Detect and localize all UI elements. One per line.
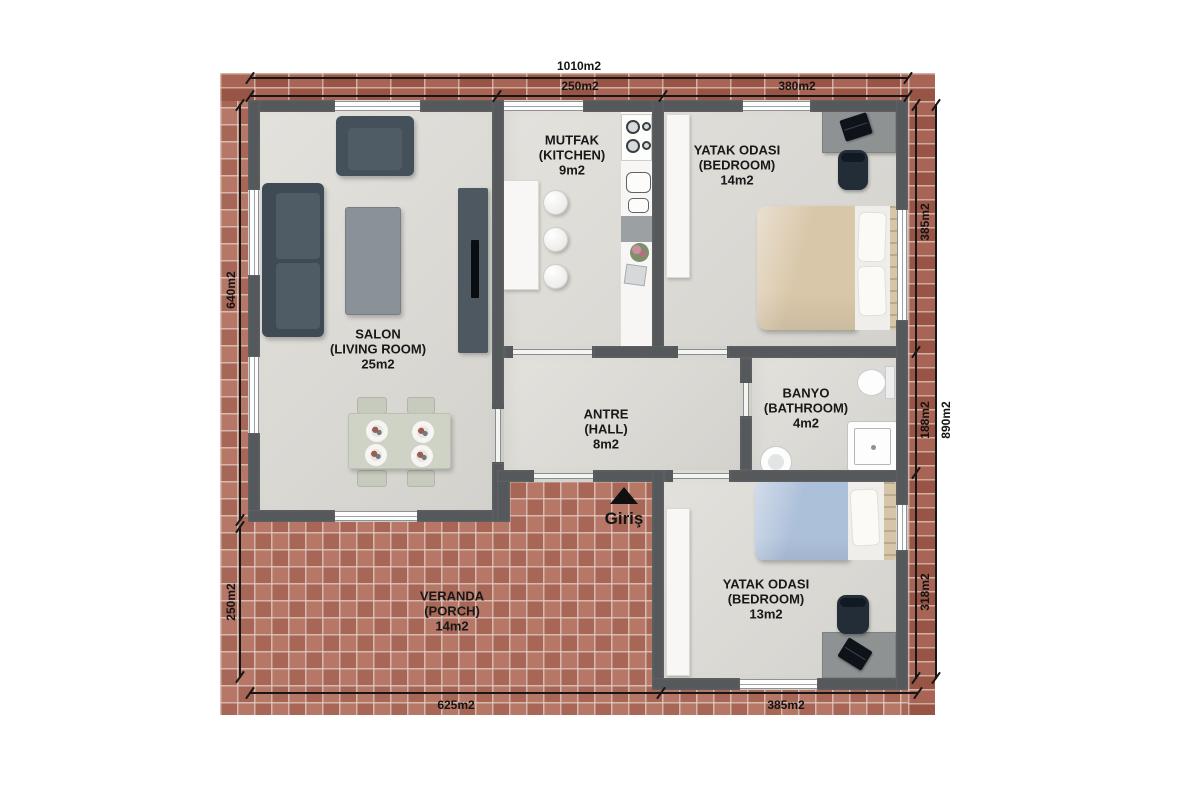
room-area: 9m2 xyxy=(539,163,605,178)
wall-right xyxy=(896,100,908,210)
room-name-tr: BANYO xyxy=(764,386,848,401)
window-bedroom2-right xyxy=(897,505,907,550)
wardrobe xyxy=(666,114,690,278)
kitchen-appliance xyxy=(621,216,653,242)
sofa-cushion xyxy=(276,263,320,329)
toilet-tank xyxy=(885,366,895,399)
plate xyxy=(410,444,434,468)
wall-left xyxy=(248,433,260,522)
dim-label-right-total: 890m2 xyxy=(939,385,953,455)
dim-label-bottom-veranda: 625m2 xyxy=(437,698,474,712)
office-chair xyxy=(838,150,868,190)
sofa-cushion xyxy=(276,193,320,259)
room-name-en: (BEDROOM) xyxy=(694,158,780,173)
window-bedroom2-bottom xyxy=(740,679,817,689)
wall-kitchen-bedroom1 xyxy=(652,100,664,358)
room-area: 14m2 xyxy=(420,619,484,634)
bed-duvet xyxy=(757,206,855,330)
wall-left xyxy=(248,275,260,357)
room-name-tr: ANTRE xyxy=(584,407,629,422)
wall-mid xyxy=(593,346,677,358)
dim-line-top-segments xyxy=(250,95,908,97)
wall-hall-bottom xyxy=(497,470,533,482)
dim-label-left-main: 640m2 xyxy=(224,255,238,325)
dim-line-right-total xyxy=(935,104,937,679)
room-area: 13m2 xyxy=(723,607,809,622)
room-area: 8m2 xyxy=(584,437,629,452)
window-salon-bottom xyxy=(335,511,417,521)
dim-line-left-veranda xyxy=(239,526,241,678)
sink-basin xyxy=(626,172,651,193)
room-name-en: (HALL) xyxy=(584,422,629,437)
plant xyxy=(630,243,649,262)
serving-tray xyxy=(624,264,648,287)
wall-salon-bottom xyxy=(248,510,335,522)
room-label-bedroom1: YATAK ODASI (BEDROOM) 14m2 xyxy=(694,143,780,188)
shower-drain xyxy=(871,445,876,450)
room-name-tr: MUTFAK xyxy=(539,133,605,148)
door-entrance xyxy=(533,473,594,479)
bar-stool xyxy=(543,227,568,252)
room-name-en: (PORCH) xyxy=(420,604,484,619)
tv xyxy=(471,240,479,298)
dim-label-left-veranda: 250m2 xyxy=(224,567,238,637)
room-area: 4m2 xyxy=(764,416,848,431)
entrance-arrow-icon xyxy=(610,487,638,504)
headboard xyxy=(890,206,897,330)
room-name-en: (BEDROOM) xyxy=(723,592,809,607)
wall-right xyxy=(896,320,908,505)
wardrobe xyxy=(666,508,690,676)
door-kitchen xyxy=(512,349,593,355)
dim-label-top-bedroom1: 380m2 xyxy=(778,79,815,93)
bar-stool xyxy=(543,264,568,289)
wall-top xyxy=(248,100,335,112)
dining-chair xyxy=(407,470,435,487)
plate xyxy=(411,420,435,444)
shower-tray xyxy=(847,421,898,472)
wall-top xyxy=(810,100,908,112)
room-label-hall: ANTRE (HALL) 8m2 xyxy=(584,407,629,452)
room-label-kitchen: MUTFAK (KITCHEN) 9m2 xyxy=(539,133,605,178)
dim-label-bottom-bedroom2: 385m2 xyxy=(767,698,804,712)
armchair-cushion xyxy=(348,128,402,170)
room-label-bedroom2: YATAK ODASI (BEDROOM) 13m2 xyxy=(723,577,809,622)
stove-burner xyxy=(626,139,640,153)
wall-mid xyxy=(728,346,908,358)
dining-chair xyxy=(357,470,387,487)
dim-label-right-bedroom2: 318m2 xyxy=(918,557,932,627)
room-name-tr: YATAK ODASI xyxy=(723,577,809,592)
room-name-tr: SALON xyxy=(330,327,426,342)
sink-basin xyxy=(628,198,649,213)
door-bedroom2 xyxy=(672,473,730,479)
headboard xyxy=(884,482,896,560)
stove-burner xyxy=(642,141,651,150)
wall-top xyxy=(420,100,497,112)
pillow xyxy=(857,266,887,317)
pillow xyxy=(850,488,881,546)
room-name-tr: YATAK ODASI xyxy=(694,143,780,158)
room-area: 25m2 xyxy=(330,357,426,372)
dim-label-top-kitchen: 250m2 xyxy=(561,79,598,93)
room-label-veranda: VERANDA (PORCH) 14m2 xyxy=(420,589,484,634)
room-name-en: (LIVING ROOM) xyxy=(330,342,426,357)
dim-label-top-total: 1010m2 xyxy=(557,59,601,73)
door-bedroom1 xyxy=(677,349,728,355)
plate xyxy=(364,443,388,467)
coffee-table xyxy=(345,207,401,315)
room-area: 14m2 xyxy=(694,173,780,188)
wall-bedroom2-bottom xyxy=(817,678,908,690)
wall-hall-bath xyxy=(740,417,752,470)
room-name-en: (BATHROOM) xyxy=(764,401,848,416)
pillow xyxy=(857,212,887,263)
wall-left xyxy=(248,100,260,190)
room-label-salon: SALON (LIVING ROOM) 25m2 xyxy=(330,327,426,372)
bar-stool xyxy=(543,190,568,215)
toilet-bowl xyxy=(857,369,886,396)
window-salon-top xyxy=(335,101,420,111)
kitchen-island xyxy=(503,180,539,290)
window-kitchen-top xyxy=(497,101,583,111)
dim-label-right-bedroom1: 385m2 xyxy=(918,187,932,257)
wall-right xyxy=(896,550,908,690)
dim-line-bottom xyxy=(250,692,918,694)
wall-bedroom2-left xyxy=(652,470,664,690)
dining-chair xyxy=(407,397,435,414)
bathroom-sink-bowl xyxy=(768,454,784,470)
room-name-tr: VERANDA xyxy=(420,589,484,604)
dim-label-right-bathroom: 188m2 xyxy=(918,385,932,455)
window-salon-left xyxy=(249,190,259,275)
window-bedroom1-top xyxy=(743,101,810,111)
door-bathroom xyxy=(743,382,749,417)
room-name-en: (KITCHEN) xyxy=(539,148,605,163)
door-salon-hall xyxy=(495,408,501,463)
bed-duvet xyxy=(755,482,848,560)
stove-burner xyxy=(626,120,640,134)
dim-line-left-main xyxy=(239,104,241,521)
room-label-bathroom: BANYO (BATHROOM) 4m2 xyxy=(764,386,848,431)
wall-salon-kitchen xyxy=(492,100,504,408)
window-bedroom1-right xyxy=(897,210,907,320)
dim-line-right-segments xyxy=(915,104,917,679)
window-salon-left xyxy=(249,357,259,433)
entrance-label: Giriş xyxy=(605,509,644,529)
dining-chair xyxy=(357,397,387,414)
floor-plan: SALON (LIVING ROOM) 25m2 MUTFAK (KITCHEN… xyxy=(0,0,1200,800)
wall-bath-bedroom2 xyxy=(730,470,908,482)
stove-burner xyxy=(642,122,651,131)
office-chair xyxy=(837,595,869,634)
dining-table xyxy=(348,413,451,469)
plate xyxy=(365,419,389,443)
